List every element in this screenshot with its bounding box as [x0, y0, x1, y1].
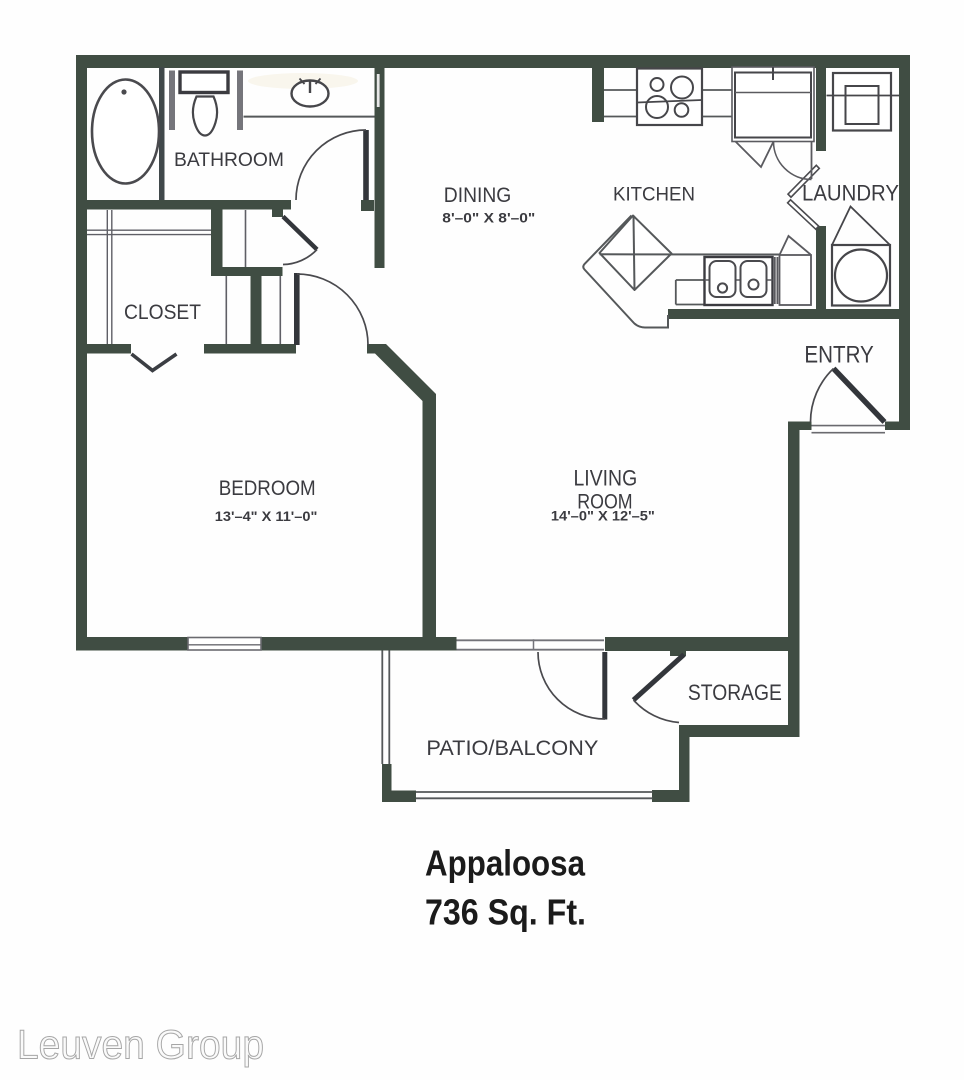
svg-text:CLOSET: CLOSET: [124, 301, 201, 324]
svg-text:KITCHEN: KITCHEN: [613, 185, 695, 206]
svg-text:PATIO/BALCONY: PATIO/BALCONY: [426, 737, 598, 760]
svg-text:DINING: DINING: [444, 184, 512, 207]
svg-text:ENTRY: ENTRY: [804, 342, 873, 369]
svg-text:BEDROOM: BEDROOM: [219, 476, 316, 500]
svg-text:736 Sq. Ft.: 736 Sq. Ft.: [425, 892, 586, 933]
svg-text:8'–0" X 8'–0": 8'–0" X 8'–0": [442, 211, 535, 226]
svg-text:Leuven Group: Leuven Group: [17, 1022, 264, 1068]
svg-text:BATHROOM: BATHROOM: [174, 149, 284, 171]
svg-text:LIVING: LIVING: [574, 465, 638, 490]
svg-text:14'–0" X 12'–5": 14'–0" X 12'–5": [551, 508, 655, 523]
svg-text:LAUNDRY: LAUNDRY: [802, 181, 899, 206]
svg-text:STORAGE: STORAGE: [688, 680, 782, 705]
svg-text:Appaloosa: Appaloosa: [425, 843, 586, 884]
svg-text:13'–4" X 11'–0": 13'–4" X 11'–0": [215, 509, 318, 524]
